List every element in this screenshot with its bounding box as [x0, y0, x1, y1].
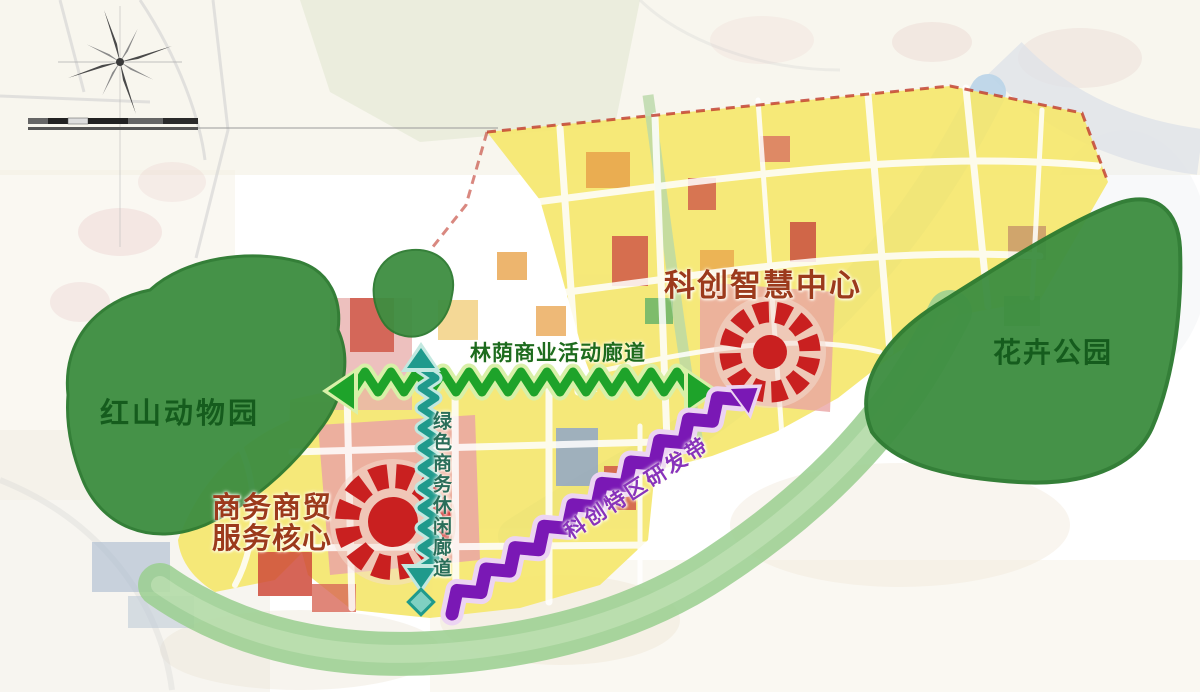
label-business-core: 商务商贸 服务核心 — [212, 492, 332, 554]
label-smart-center: 科创智慧中心 — [664, 260, 862, 305]
label-business-core-line1: 商务商贸 — [212, 492, 332, 523]
label-zoo: 红山动物园 — [100, 390, 260, 432]
label-corridor-vertical: 绿色商务休闲廊道 — [428, 411, 455, 579]
planning-map: 红山动物园 花卉公园 科创智慧中心 商务商贸 服务核心 林荫商业活动廊道 绿色商… — [0, 0, 1200, 692]
label-corridor-horizontal: 林荫商业活动廊道 — [470, 337, 646, 367]
label-business-core-line2: 服务核心 — [212, 523, 332, 554]
label-flower-park: 花卉公园 — [993, 331, 1113, 371]
